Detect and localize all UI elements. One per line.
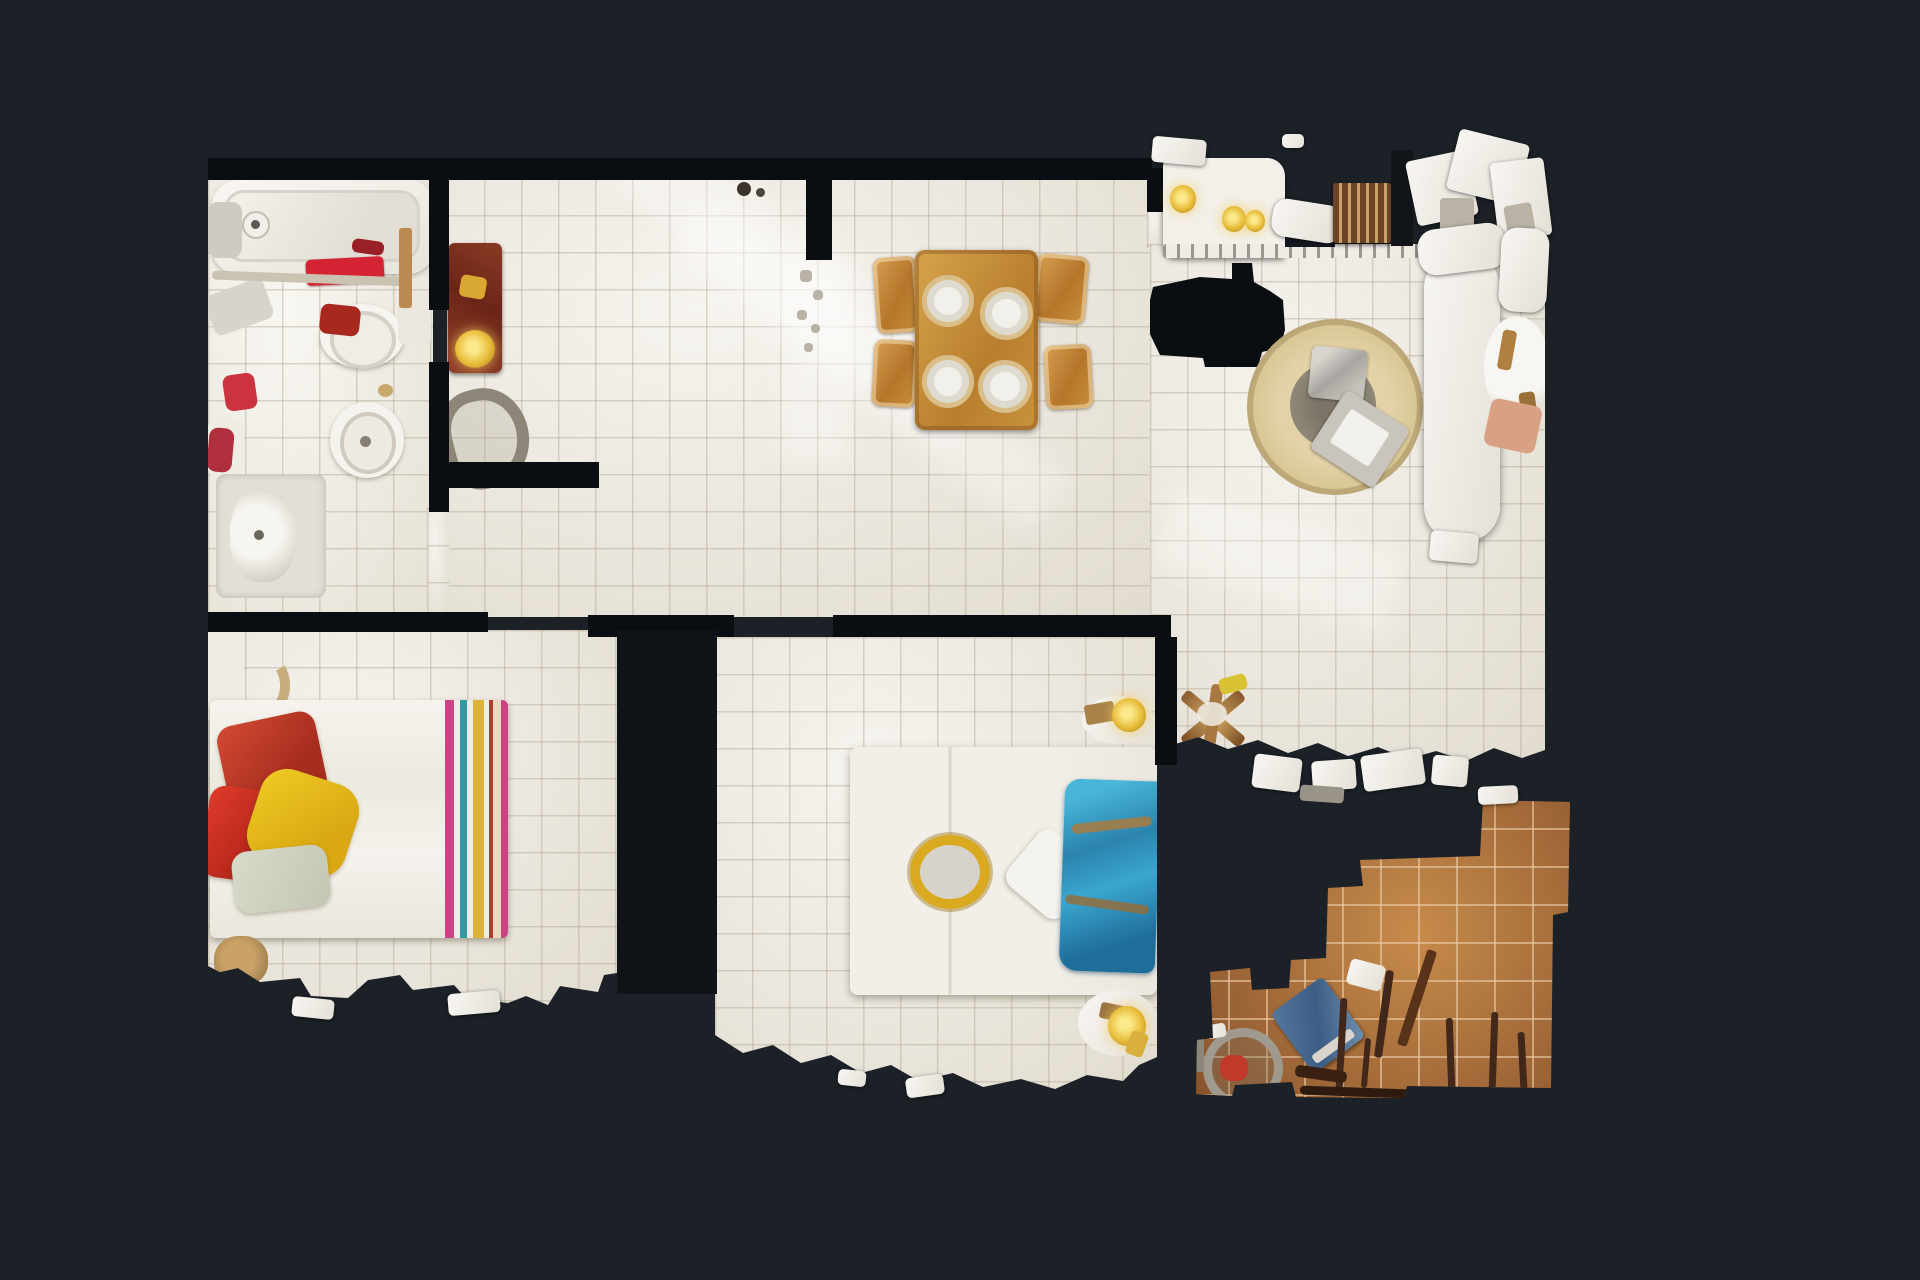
gray-scan-artifact bbox=[208, 277, 275, 338]
blanket-tan-streak bbox=[1065, 894, 1149, 915]
kitchen-pendant-light bbox=[1222, 206, 1246, 232]
x-folding-table bbox=[1175, 678, 1251, 760]
wall-bedroom-left-top bbox=[208, 612, 488, 632]
scan-fragment-gray bbox=[1299, 784, 1344, 803]
plate bbox=[922, 355, 974, 408]
scan-fragment bbox=[1251, 753, 1303, 793]
bathtub-faucet bbox=[208, 202, 242, 258]
wall-top bbox=[208, 158, 1152, 180]
scan-fragment bbox=[1431, 754, 1469, 787]
scan-fragment bbox=[291, 996, 335, 1020]
dining-chair bbox=[872, 256, 920, 335]
bathroom-floor bbox=[208, 178, 433, 616]
dining-chair bbox=[1032, 253, 1090, 325]
wall-bedroom-middle-right bbox=[1155, 637, 1177, 765]
blanket-tan-streak bbox=[1071, 816, 1152, 834]
scan-fragment bbox=[1478, 785, 1519, 805]
mesh-fragment bbox=[1498, 227, 1550, 313]
kitchen-pendant-light bbox=[1245, 210, 1265, 232]
plate bbox=[922, 275, 974, 327]
blue-board bbox=[1270, 976, 1365, 1073]
terrace-floor bbox=[1190, 790, 1580, 1108]
scan-fragment bbox=[837, 1069, 867, 1088]
towel-red-toilet bbox=[319, 303, 362, 337]
pillow-sage bbox=[230, 843, 332, 915]
void-between-bedrooms bbox=[617, 630, 717, 994]
wall-corridor bbox=[447, 462, 599, 488]
tray-inner bbox=[1330, 408, 1390, 467]
wall-bathroom-right-upper bbox=[429, 168, 449, 310]
blue-board-edge bbox=[1311, 1028, 1356, 1064]
hall-dining-floor bbox=[447, 178, 1157, 617]
salmon-cushion bbox=[1483, 397, 1544, 455]
bedroom-middle-floor bbox=[715, 637, 1157, 1090]
railing-bar bbox=[1361, 1038, 1371, 1088]
sink-drain bbox=[254, 530, 264, 540]
blanket-blue bbox=[1059, 778, 1157, 973]
striped-blanket bbox=[445, 700, 508, 938]
bidet-drain bbox=[360, 436, 371, 447]
armchair-cushion bbox=[458, 274, 487, 300]
hose-reel-red bbox=[1220, 1055, 1248, 1081]
scan-fragment bbox=[905, 1073, 945, 1098]
mesh-fragment bbox=[1282, 134, 1304, 148]
towel-red-wall bbox=[222, 372, 259, 412]
wood-slats bbox=[1333, 183, 1391, 243]
railing-bar bbox=[1397, 949, 1437, 1047]
living-floor bbox=[1150, 244, 1545, 763]
floor-patch bbox=[427, 508, 449, 616]
white-wedge bbox=[1345, 958, 1387, 992]
dining-chair bbox=[1043, 344, 1093, 410]
tan-bag bbox=[214, 936, 268, 986]
sunlight-streak bbox=[779, 251, 856, 463]
plate bbox=[980, 287, 1033, 340]
floor-speck bbox=[737, 182, 751, 196]
glassware-speck bbox=[797, 310, 807, 320]
floor-speck bbox=[756, 188, 765, 197]
gold-ring-pillow bbox=[910, 835, 990, 909]
railing-bar bbox=[1446, 1018, 1456, 1092]
glassware-speck bbox=[813, 290, 823, 300]
soap-dot bbox=[378, 384, 393, 397]
towel-red-lower bbox=[208, 427, 235, 473]
sofa bbox=[1424, 252, 1500, 542]
floorplan-stage bbox=[0, 0, 1920, 1280]
glassware-speck bbox=[811, 324, 820, 333]
nightstand-lamp bbox=[1112, 698, 1146, 732]
sofa-fragment bbox=[1429, 530, 1479, 564]
bathtub-drain-hole bbox=[251, 220, 260, 229]
wall-hall-dining-stub bbox=[806, 158, 832, 260]
railing-bar bbox=[1517, 1032, 1527, 1092]
kitchen-pendant-light bbox=[1170, 185, 1196, 213]
bathroom-door-leaf bbox=[399, 228, 412, 308]
plate bbox=[978, 360, 1032, 413]
mesh-fragment bbox=[1151, 136, 1207, 167]
glassware-speck bbox=[804, 343, 813, 352]
x-table-yellow-bit bbox=[1217, 673, 1248, 696]
glassware-speck bbox=[800, 270, 812, 282]
scan-fragment bbox=[1360, 748, 1426, 792]
sunlight-streak bbox=[1154, 488, 1407, 631]
x-table-center bbox=[1197, 702, 1227, 726]
bedroom-left-floor bbox=[208, 630, 617, 1010]
dining-chair bbox=[871, 339, 918, 408]
serving-tray bbox=[1307, 345, 1368, 403]
wall-bathroom-right-lower bbox=[429, 362, 449, 512]
wall-bedroom-middle-top bbox=[833, 615, 1171, 637]
railing-bar bbox=[1489, 1012, 1499, 1092]
terrace-gray-edge bbox=[1190, 1000, 1204, 1072]
railing-shadow bbox=[1300, 1086, 1440, 1100]
scan-fragment bbox=[447, 990, 501, 1016]
floor-lamp bbox=[455, 330, 495, 368]
